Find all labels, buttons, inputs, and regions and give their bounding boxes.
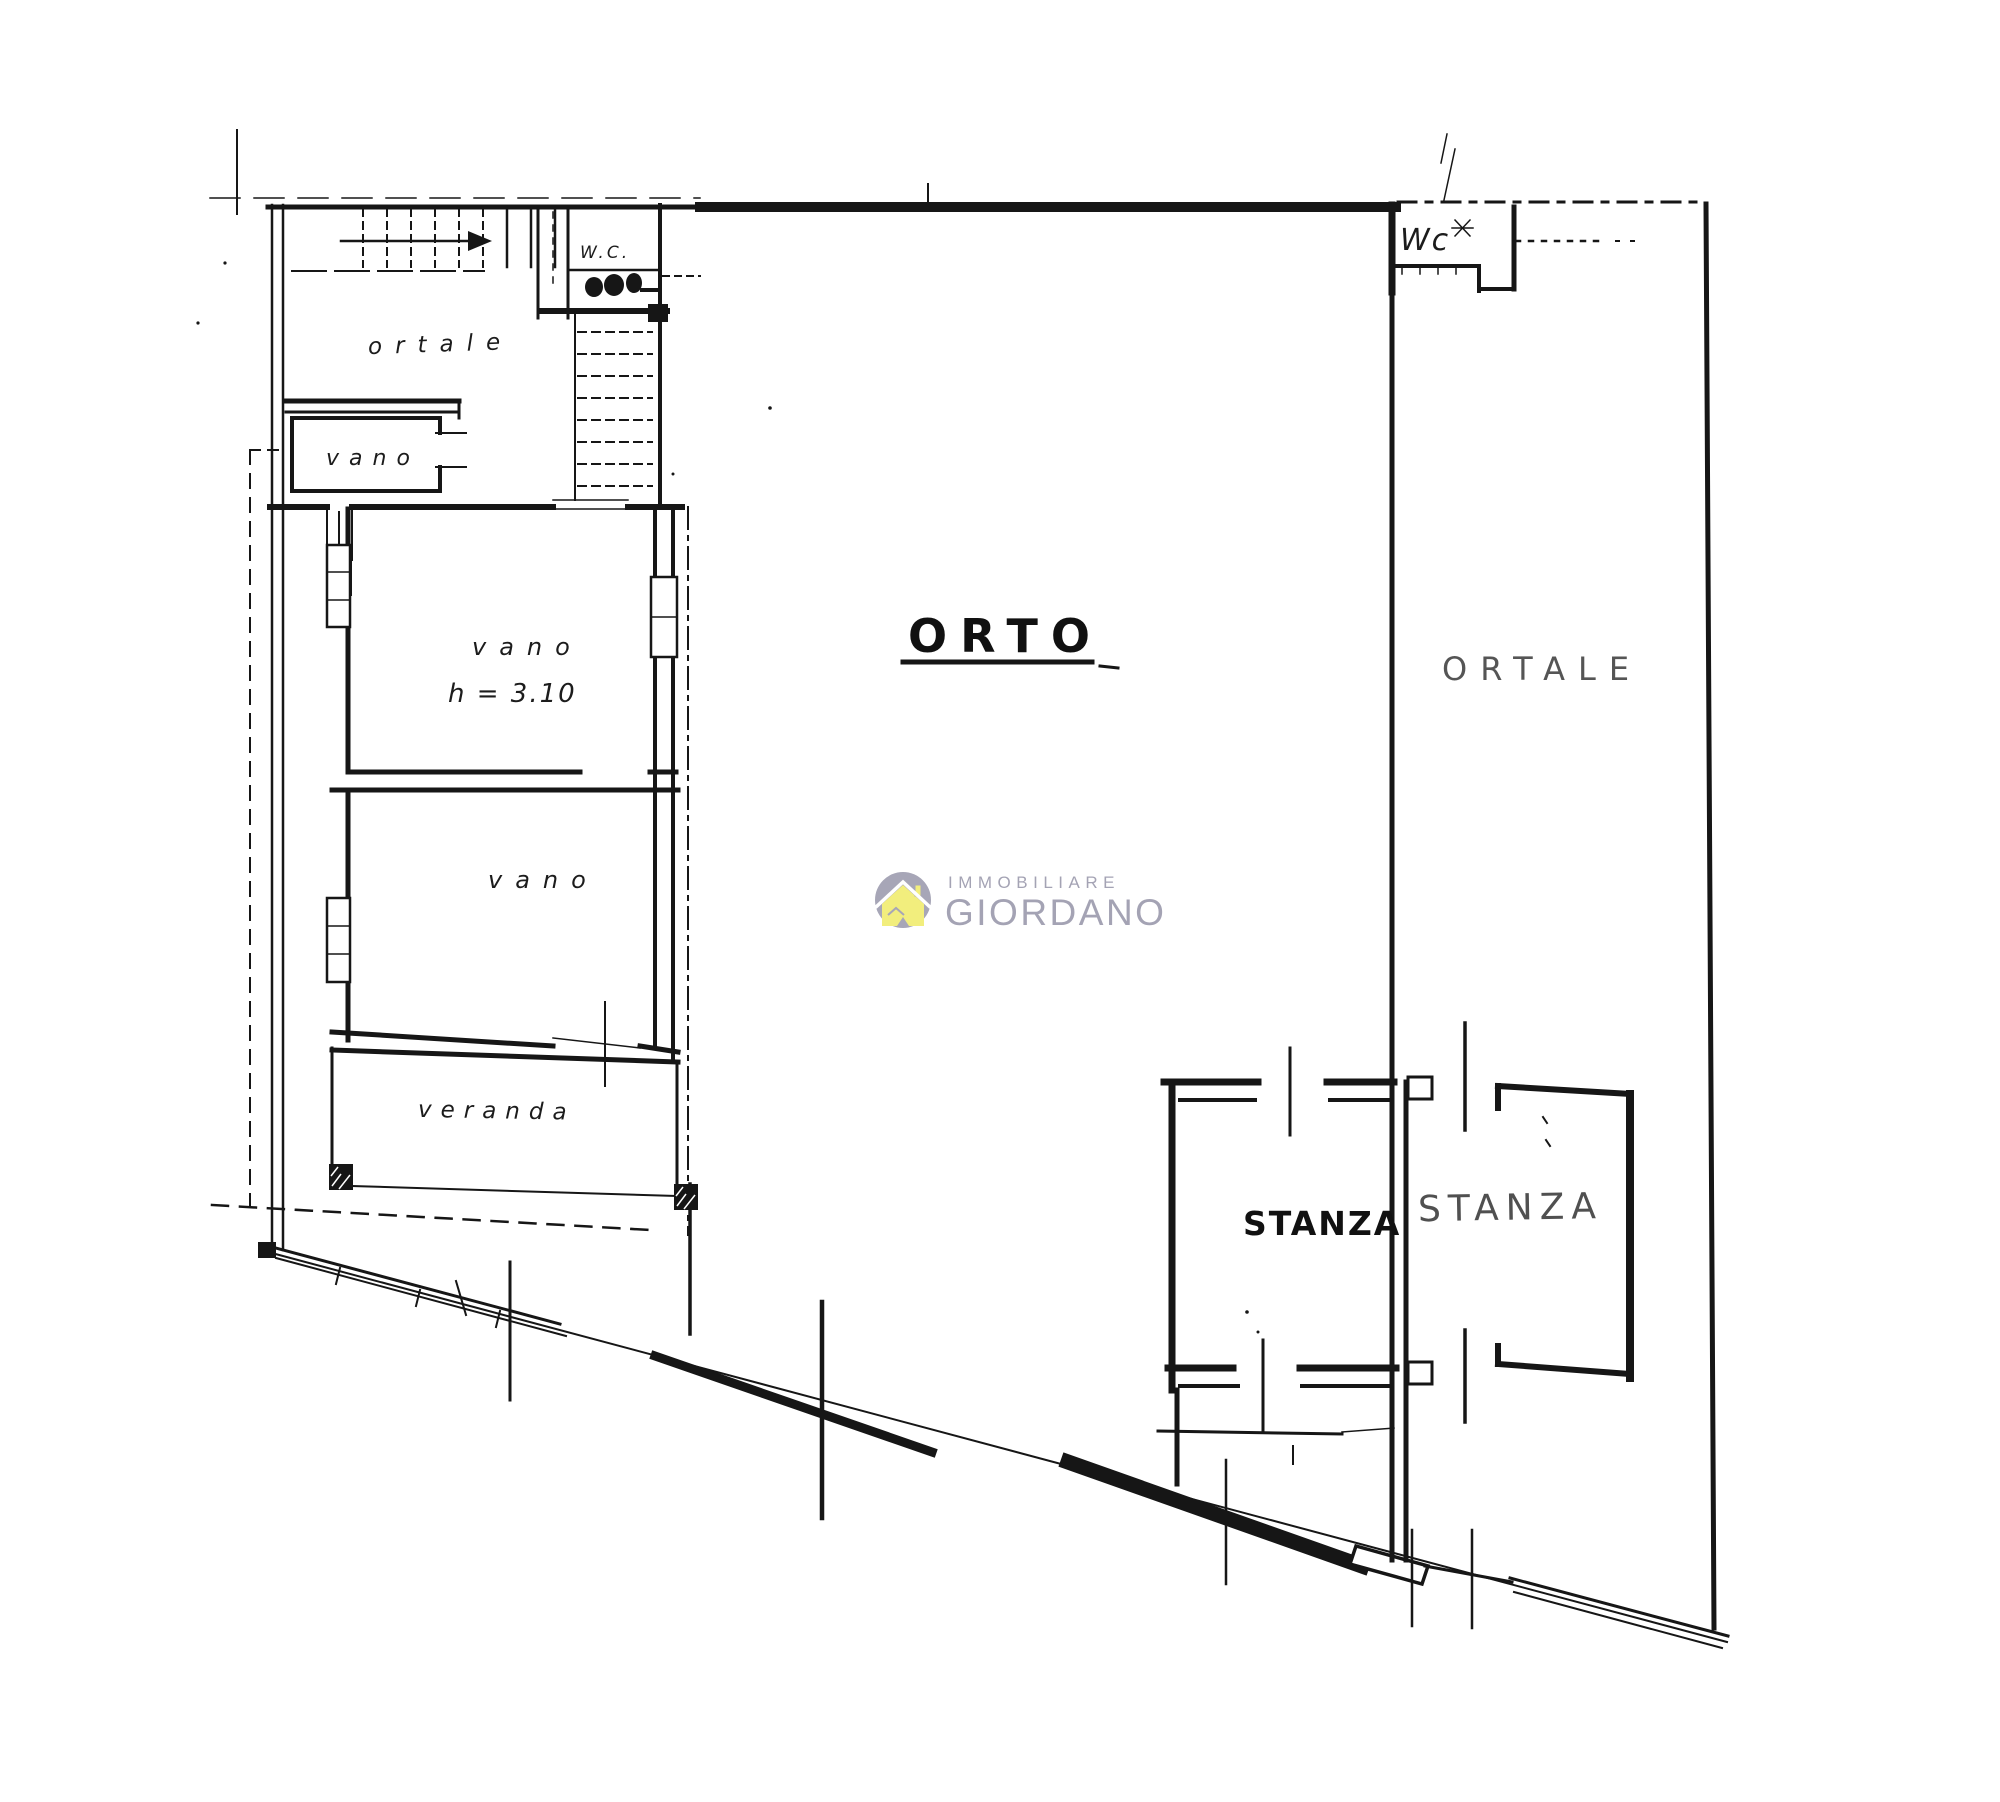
ortale-top-left-label: ortale (368, 329, 514, 360)
small-room-below-stanza (1158, 1390, 1394, 1484)
room-vano-lower: vano (327, 790, 678, 1086)
diagonal-boundary (268, 1184, 1728, 1648)
room-vano-small: vano (292, 418, 466, 491)
room-veranda: veranda (329, 1048, 698, 1210)
corridor-walls-right-of-rooms (651, 507, 688, 1235)
vano-small-label: vano (326, 446, 420, 471)
hatched-pillar (674, 1184, 698, 1210)
wall-stub (1408, 1077, 1432, 1099)
vano-main-label: vano (472, 633, 583, 661)
floor-plan-drawing: W.C. ortale vano (0, 0, 2000, 1802)
upper-staircase (292, 209, 555, 271)
asterisk-scribble (1452, 220, 1473, 236)
stanza-left-room: STANZA (1164, 1048, 1406, 1560)
smudged-note (585, 273, 658, 297)
watermark-line2: GIORDANO (945, 892, 1166, 933)
vano-main-height: h = 3.10 (448, 679, 577, 709)
stanza-right-label: STANZA (1418, 1186, 1604, 1230)
vano-lower-label: vano (488, 866, 599, 894)
wc-room-top-right: Wc (1392, 205, 1642, 292)
stanza-left-label: STANZA (1243, 1204, 1401, 1243)
scan-noise (196, 261, 1259, 1333)
watermark-line1: IMMOBILIARE (948, 873, 1120, 892)
hatched-pillar (329, 1164, 353, 1190)
orto-label: ORTO (908, 609, 1103, 663)
lower-staircase (575, 312, 652, 500)
veranda-label: veranda (418, 1097, 576, 1126)
ortale-right-area: ORTALE (1442, 650, 1642, 688)
stanza-right-room: STANZA (1408, 1023, 1630, 1422)
agency-watermark: IMMOBILIARE GIORDANO (875, 872, 1166, 933)
room-vano-main: vano h = 3.10 (327, 509, 676, 772)
wc-top-right-label: Wc (1400, 223, 1450, 258)
window-frame (327, 545, 350, 627)
ortale-right-label: ORTALE (1442, 650, 1642, 688)
wc-top-left-label: W.C. (580, 243, 630, 263)
floor-plan-page: W.C. ortale vano (0, 0, 2000, 1802)
wall-stub (1408, 1362, 1432, 1384)
ortale-top-left-area: ortale (286, 329, 514, 418)
window-frame (327, 898, 350, 982)
